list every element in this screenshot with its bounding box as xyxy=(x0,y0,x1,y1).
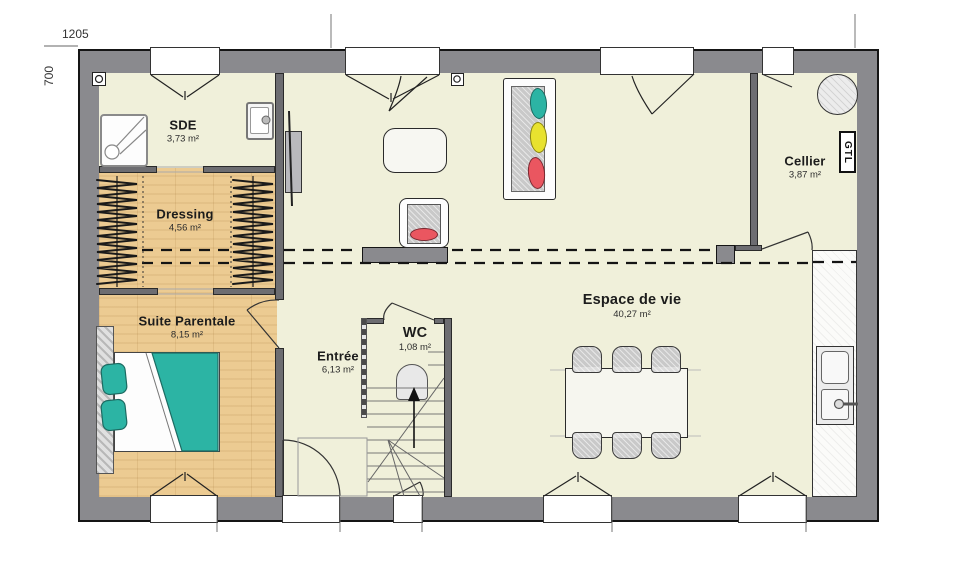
front-door xyxy=(393,495,423,523)
french-door-living-2 xyxy=(600,47,694,75)
room-label-sde: SDE 3,73 m² xyxy=(167,118,199,145)
wall-sde-dressing-a xyxy=(99,166,157,173)
wall-wc-north-b xyxy=(434,318,444,324)
window-living-1 xyxy=(543,495,612,523)
partition-stair-west xyxy=(361,318,367,418)
dining-chair xyxy=(651,432,681,459)
gtl-box: GTL xyxy=(839,131,856,173)
wall-vent-icon xyxy=(451,73,464,86)
floor-plan: GTL xyxy=(0,0,960,568)
water-heater xyxy=(817,74,858,115)
kitchen-sink-basin xyxy=(821,389,849,420)
wall-pier xyxy=(716,245,735,264)
wall-dressing-suite-a xyxy=(99,288,158,295)
dining-chair xyxy=(612,346,642,373)
window-suite xyxy=(150,495,218,523)
room-label-espace-de-vie: Espace de vie 40,27 m² xyxy=(583,292,682,320)
gtl-label: GTL xyxy=(842,141,853,164)
bed-base xyxy=(114,352,220,452)
wall-dressing-suite-b xyxy=(213,288,275,295)
room-label-suite-parentale: Suite Parentale 8,15 m² xyxy=(139,314,236,341)
window-living-2 xyxy=(738,495,807,523)
dimension-width-label: 1205 xyxy=(62,27,89,41)
wall-stair-east xyxy=(444,318,452,497)
room-label-entree: Entrée 6,13 m² xyxy=(317,349,359,376)
room-label-cellier: Cellier 3,87 m² xyxy=(784,154,825,181)
dining-chair xyxy=(572,346,602,373)
wall-sde-dressing-b xyxy=(203,166,275,173)
dining-chair xyxy=(612,432,642,459)
wall-cellier-west xyxy=(750,73,758,248)
dining-chair xyxy=(651,346,681,373)
tv-unit xyxy=(285,131,302,193)
armchair-cushion xyxy=(410,228,438,241)
wall-bedroom-zone-east-lower xyxy=(275,348,284,497)
door-cellier-exterior xyxy=(762,47,794,75)
shower-tray xyxy=(100,114,148,167)
window-sde xyxy=(150,47,220,75)
half-wall-above-stair xyxy=(362,247,448,263)
bathroom-sink-basin xyxy=(250,107,269,134)
wall-bedroom-zone-east-upper xyxy=(275,73,284,300)
dining-chair xyxy=(572,432,602,459)
dimension-height-label: 700 xyxy=(42,46,56,86)
dining-table xyxy=(565,368,688,438)
toilet xyxy=(396,364,428,400)
coffee-table xyxy=(383,128,447,173)
wall-cellier-south-stub xyxy=(735,245,762,251)
bed-headboard xyxy=(96,326,114,474)
wall-vent-icon xyxy=(92,72,106,86)
french-door-living-1 xyxy=(345,47,440,75)
room-label-wc: WC 1,08 m² xyxy=(399,325,431,353)
kitchen-sink-drainer xyxy=(821,351,849,384)
french-door-entree xyxy=(282,495,340,523)
room-label-dressing: Dressing 4,56 m² xyxy=(156,207,213,234)
